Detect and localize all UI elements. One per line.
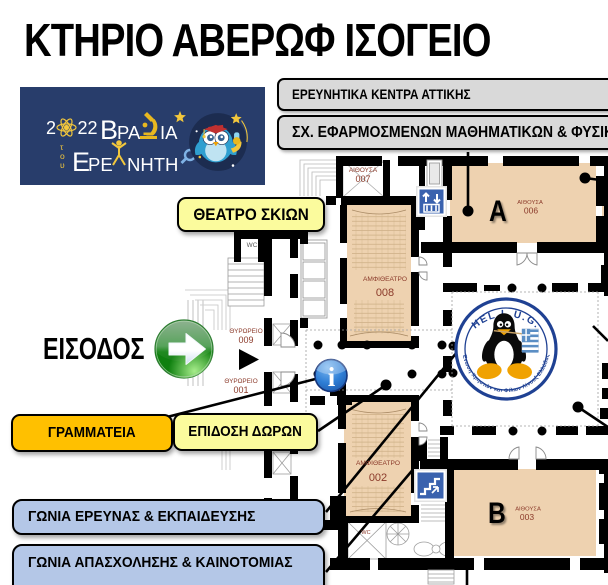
svg-text:22: 22 bbox=[78, 118, 98, 138]
svg-text:003: 003 bbox=[520, 512, 534, 522]
svg-text:007: 007 bbox=[355, 174, 370, 184]
svg-text:ΡΕ: ΡΕ bbox=[88, 154, 113, 175]
svg-text:ΑΙΘΟΥΣΑ: ΑΙΘΟΥΣΑ bbox=[349, 167, 378, 174]
svg-text:001: 001 bbox=[233, 385, 248, 395]
svg-text:ΘΥΡΩΡΕΙΟ: ΘΥΡΩΡΕΙΟ bbox=[224, 378, 257, 385]
svg-text:002: 002 bbox=[369, 472, 387, 484]
svg-text:ΝΗΤΗ: ΝΗΤΗ bbox=[127, 154, 178, 175]
svg-text:ΙΑ: ΙΑ bbox=[160, 122, 178, 143]
svg-text:WC: WC bbox=[361, 530, 370, 536]
svg-text:i: i bbox=[328, 362, 336, 392]
svg-text:ΘΥΡΩΡΕΙΟ: ΘΥΡΩΡΕΙΟ bbox=[229, 328, 262, 335]
svg-text:B: B bbox=[488, 496, 506, 530]
svg-text:ΑΜΦΙΘΕΑΤΡΟ: ΑΜΦΙΘΕΑΤΡΟ bbox=[356, 460, 400, 467]
svg-text:WC: WC bbox=[247, 242, 258, 249]
svg-text:υ: υ bbox=[60, 160, 65, 170]
svg-text:006: 006 bbox=[524, 206, 538, 216]
svg-text:2: 2 bbox=[46, 118, 56, 138]
svg-text:009: 009 bbox=[238, 335, 253, 345]
svg-text:A: A bbox=[489, 194, 507, 228]
svg-text:Β: Β bbox=[100, 115, 118, 145]
svg-text:008: 008 bbox=[376, 287, 394, 299]
svg-text:ΑΜΦΙΘΕΑΤΡΟ: ΑΜΦΙΘΕΑΤΡΟ bbox=[363, 276, 407, 283]
svg-text:ΡΑ: ΡΑ bbox=[117, 122, 141, 143]
